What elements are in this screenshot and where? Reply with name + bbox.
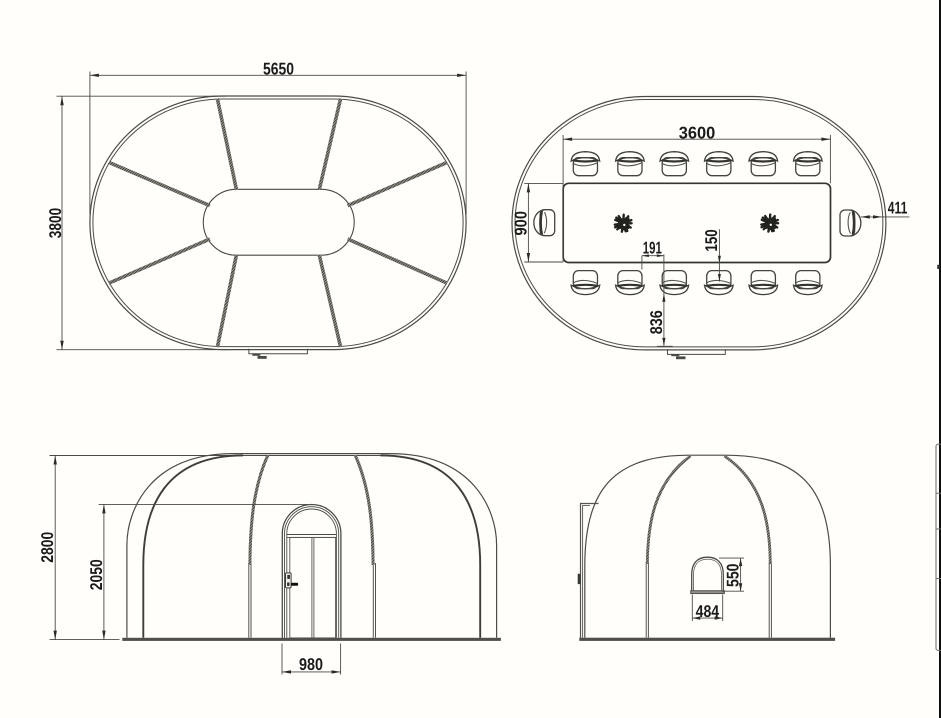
svg-text:150: 150 (702, 229, 721, 251)
svg-text:2050: 2050 (87, 559, 106, 590)
svg-text:2800: 2800 (38, 532, 57, 563)
svg-text:3800: 3800 (46, 208, 65, 239)
svg-text:411: 411 (888, 198, 908, 217)
svg-text:484: 484 (696, 602, 720, 621)
svg-text:900: 900 (512, 211, 531, 236)
svg-text:550: 550 (724, 564, 743, 588)
svg-text:836: 836 (647, 310, 666, 334)
svg-text:5650: 5650 (263, 59, 294, 78)
svg-text:191: 191 (643, 239, 662, 258)
svg-text:980: 980 (299, 655, 323, 674)
svg-text:3600: 3600 (679, 123, 716, 142)
